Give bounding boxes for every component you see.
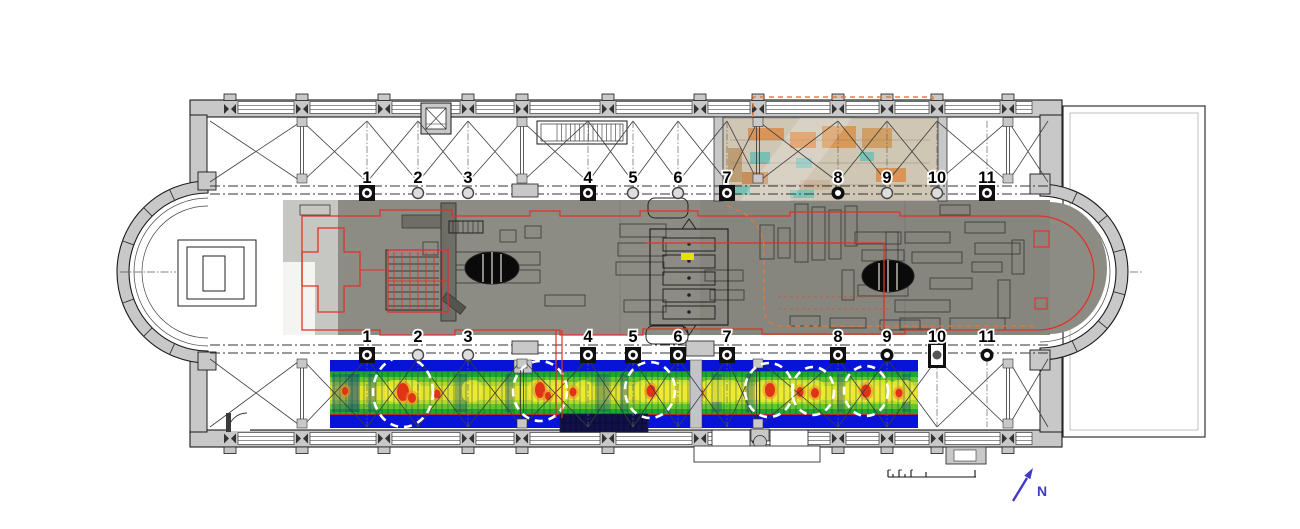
heatmap-anomaly-spot — [570, 388, 577, 397]
pilaster-stub — [517, 174, 527, 183]
buttress — [224, 447, 236, 454]
buttress — [378, 94, 390, 101]
pier-stub — [690, 360, 702, 428]
heatmap-anomaly-spot — [434, 390, 441, 399]
column-label-bottom-9: 9 — [882, 328, 891, 346]
window-slot — [476, 433, 514, 445]
column-label-bottom-7: 7 — [722, 328, 731, 346]
window-slot — [1016, 102, 1032, 114]
column-label-bottom-6: 6 — [673, 328, 682, 346]
heatmap-anomaly-spot — [408, 393, 416, 403]
scale-bar — [888, 470, 976, 477]
column-marker — [628, 188, 639, 199]
window-slot — [238, 102, 294, 114]
column-marker — [463, 188, 474, 199]
buttress — [1002, 447, 1014, 454]
excavation-photo-overlay — [714, 117, 947, 201]
column-label-bottom-8: 8 — [833, 328, 842, 346]
column-marker — [413, 350, 424, 361]
column-label-bottom-4: 4 — [583, 328, 593, 346]
column-label-bottom-1: 1 — [362, 328, 371, 346]
column-label-bottom-5: 5 — [628, 328, 637, 346]
window-slot — [392, 433, 460, 445]
figure-church-plan-gpr-survey: 11223344556677889910101111 N — [0, 0, 1300, 529]
north-arrow-head — [1024, 468, 1033, 479]
window-slot — [708, 102, 750, 114]
south-porch — [694, 446, 820, 462]
buttress — [516, 94, 528, 101]
column-label-top-5: 5 — [628, 169, 637, 187]
pilaster-stub — [1003, 419, 1013, 428]
window-slot — [530, 433, 600, 445]
heatmap-anomaly-spot — [342, 387, 348, 395]
window-slot — [530, 102, 600, 114]
pilaster-stub — [517, 118, 527, 127]
heatmap-anomaly-spot — [896, 389, 903, 398]
column-marker — [463, 350, 474, 361]
heatmap-anomaly-spot — [765, 383, 775, 397]
pilaster-stub — [753, 118, 763, 127]
pilaster-stub — [753, 419, 763, 428]
column-label-top-8: 8 — [833, 169, 842, 187]
heatmap-anomaly-spot — [545, 392, 551, 400]
heatmap-anomaly-spot — [861, 385, 871, 398]
column-label-bottom-3: 3 — [463, 328, 472, 346]
column-label-top-4: 4 — [583, 169, 593, 187]
column-label-top-9: 9 — [882, 169, 891, 187]
column-label-top-7: 7 — [722, 169, 731, 187]
window-slot — [895, 102, 929, 114]
buttress — [1002, 94, 1014, 101]
pilaster-stub — [753, 174, 763, 183]
north-aisle-stair — [537, 121, 627, 144]
west-wall-lower — [190, 360, 207, 432]
buttress — [378, 447, 390, 454]
column-label-top-1: 1 — [362, 169, 371, 187]
southeast-annex — [946, 447, 986, 464]
southwest-door — [226, 413, 250, 432]
window-slot — [310, 433, 376, 445]
buttress — [296, 447, 308, 454]
window-slot — [616, 102, 692, 114]
buttress — [602, 94, 614, 101]
north-chapel — [421, 103, 451, 134]
window-slot — [846, 433, 879, 445]
buttress — [462, 94, 474, 101]
column-label-bottom-10: 10 — [928, 328, 946, 346]
buttress — [881, 447, 893, 454]
window-slot — [945, 102, 1000, 114]
column-marker — [932, 188, 943, 199]
pilaster-stub — [297, 419, 307, 428]
photo-patch — [750, 152, 770, 164]
pilaster-stub — [297, 118, 307, 127]
pilaster-stub — [1003, 359, 1013, 368]
window-slot — [310, 102, 376, 114]
column-marker — [673, 188, 684, 199]
church-floor-plan: 11223344556677889910101111 N — [0, 0, 1300, 529]
south-entrance — [694, 429, 820, 462]
column-label-top-10: 10 — [928, 169, 946, 187]
column-label-top-2: 2 — [413, 169, 422, 187]
column-marker — [882, 188, 893, 199]
column-label-top-6: 6 — [673, 169, 682, 187]
buttress — [462, 447, 474, 454]
buttress — [296, 94, 308, 101]
pilaster-stub — [297, 359, 307, 368]
pilaster-stub — [297, 174, 307, 183]
buttress — [516, 447, 528, 454]
window-slot — [476, 102, 514, 114]
heatmap-anomaly-spot — [797, 387, 804, 397]
column-label-bottom-11: 11 — [978, 328, 995, 346]
pilaster-stub — [1003, 174, 1013, 183]
buttress — [931, 447, 943, 454]
window-slot — [238, 433, 294, 445]
buttress — [224, 94, 236, 101]
window-slot — [616, 433, 692, 445]
buttress — [694, 94, 706, 101]
heatmap-anomaly-spot — [811, 388, 819, 398]
window-slot — [766, 102, 830, 114]
pilaster-stub — [517, 419, 527, 428]
column-marker — [413, 188, 424, 199]
buttress — [832, 447, 844, 454]
yellow-highlight — [681, 253, 694, 260]
column-label-top-3: 3 — [463, 169, 472, 187]
buttress — [602, 447, 614, 454]
north-arrow: N — [1013, 468, 1047, 501]
window-slot — [846, 102, 879, 114]
column-label-bottom-2: 2 — [413, 328, 422, 346]
photo-patch — [862, 128, 892, 148]
column-label-top-11: 11 — [978, 169, 995, 187]
window-slot — [895, 433, 929, 445]
window-slot — [1016, 433, 1032, 445]
pilaster-stub — [1003, 118, 1013, 127]
window-slot — [945, 433, 1000, 445]
north-label: N — [1037, 483, 1047, 499]
